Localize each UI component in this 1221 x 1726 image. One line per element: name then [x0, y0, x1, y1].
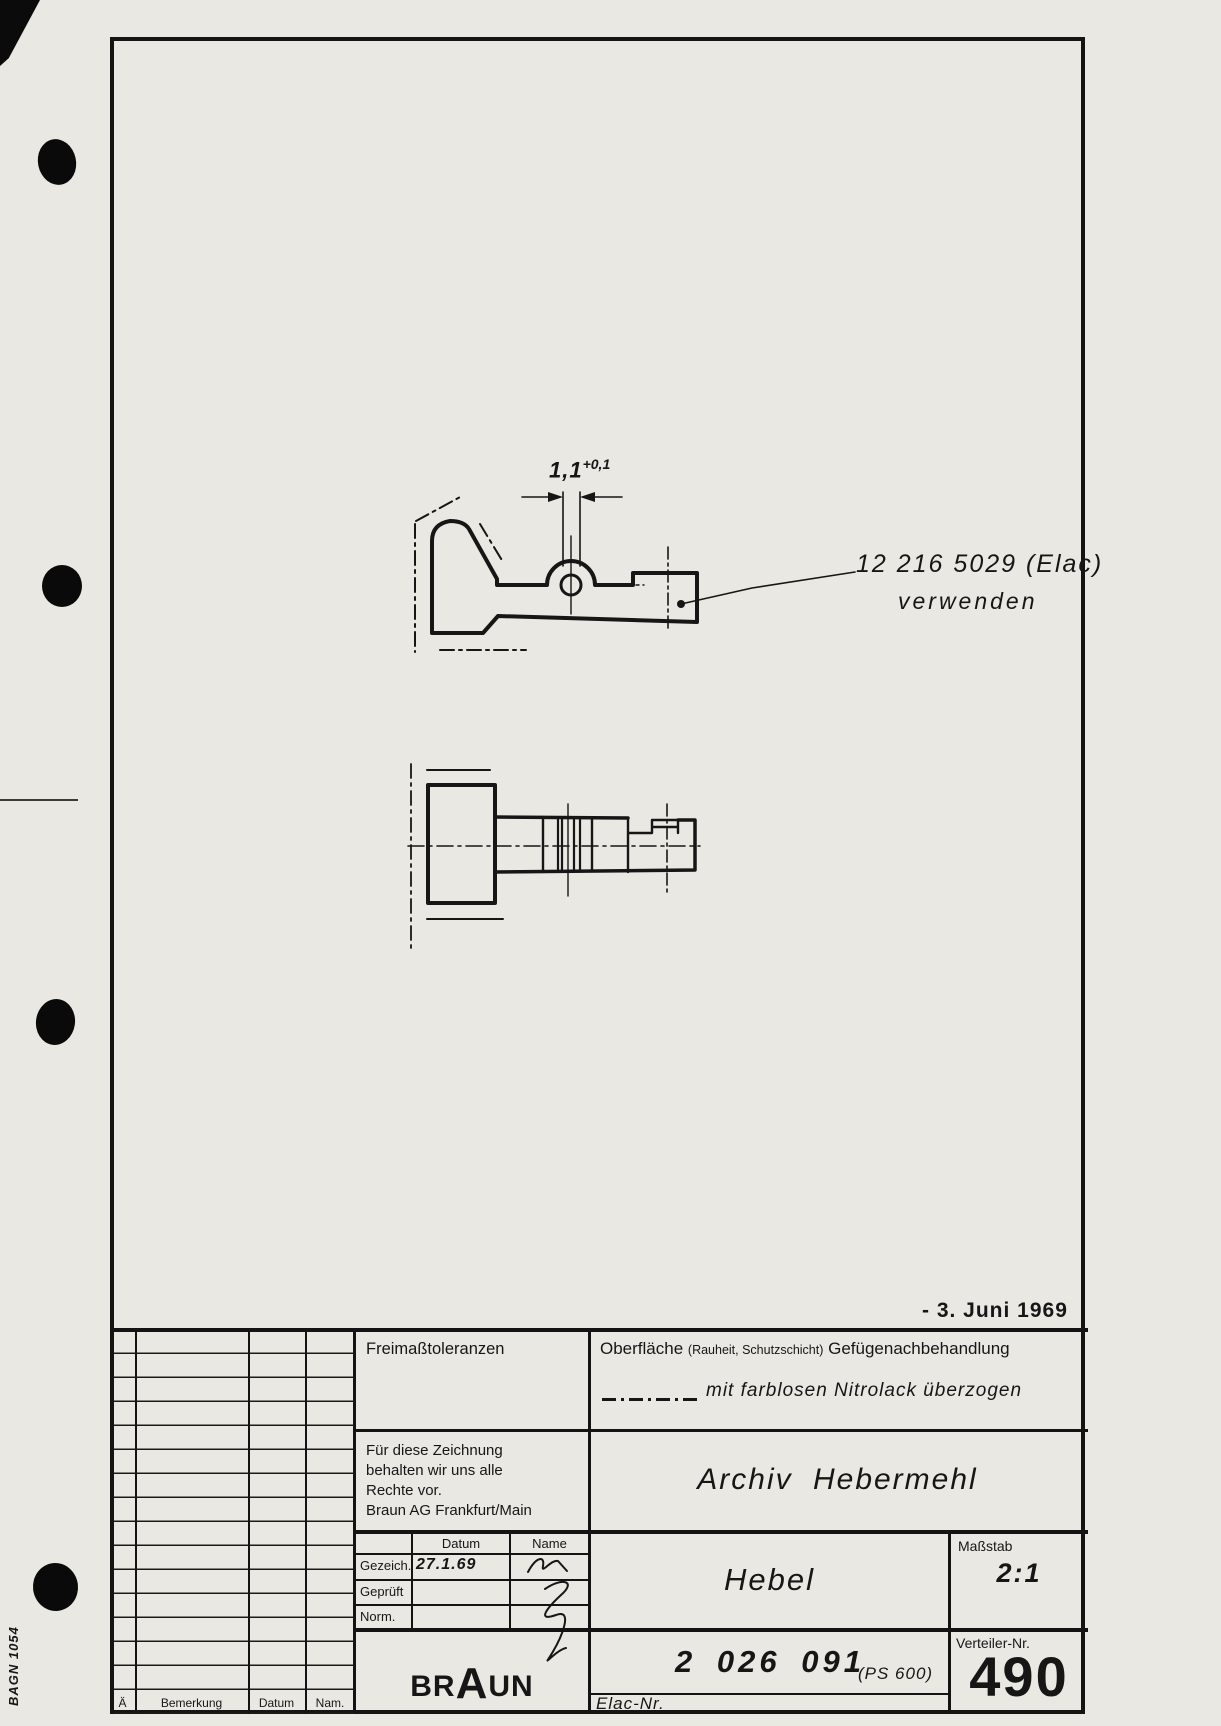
brand-logo: BR A UN — [355, 1630, 589, 1714]
rights-note-line: Rechte vor. — [366, 1481, 532, 1501]
scale-value: 2:1 — [950, 1558, 1088, 1589]
dimension-tolerance: +0,1 — [583, 456, 611, 472]
surface-label: Oberfläche — [600, 1339, 683, 1358]
surface-label-paren: (Rauheit, Schutzschicht) — [688, 1343, 823, 1357]
dim-arrow-right — [580, 492, 595, 502]
part-name: Hebel — [590, 1532, 949, 1628]
reference-ticks — [427, 770, 503, 919]
revision-v3 — [305, 1330, 307, 1714]
brand-part-a: A — [456, 1667, 489, 1700]
rights-note-line: Für diese Zeichnung — [366, 1441, 532, 1461]
revision-col-remark: Bemerkung — [135, 1696, 248, 1710]
approval-row-norm: Norm. — [360, 1609, 395, 1624]
revision-col-name: Nam. — [305, 1696, 355, 1710]
brand-part: UN — [488, 1674, 533, 1700]
dimension-label: 1,1+0,1 — [549, 456, 610, 483]
leader-dot — [677, 600, 685, 608]
leader-note-line2: verwenden — [898, 588, 1038, 615]
rights-note-line: behalten wir uns alle — [366, 1461, 532, 1481]
approval-row-gezeichnet: Gezeich. — [360, 1558, 411, 1573]
archive-name: Archiv Hebermehl — [590, 1430, 1085, 1530]
rights-note: Für diese Zeichnung behalten wir uns all… — [366, 1441, 532, 1521]
leader-line — [681, 572, 855, 604]
paddle-side-view — [428, 785, 495, 903]
freimass-label: Freimaßtoleranzen — [366, 1340, 504, 1359]
approval-row-geprueft: Geprüft — [360, 1584, 403, 1599]
surface-header: Oberfläche (Rauheit, Schutzschicht) Gefü… — [600, 1339, 1010, 1359]
approval-name-header: Name — [510, 1536, 589, 1551]
dim-arrow-left — [548, 492, 563, 502]
shaft-side-view-outline — [495, 817, 695, 872]
brand-part: BR — [410, 1674, 455, 1700]
elac-label: Elac-Nr. — [596, 1694, 665, 1714]
scanned-drawing-sheet: BAGN 1054 — [0, 0, 1221, 1726]
revision-col-a: Ä — [110, 1696, 135, 1710]
signature-gezeichnet — [528, 1559, 567, 1572]
approval-h3 — [355, 1604, 589, 1606]
drawing-number: 2 026 091 — [590, 1630, 950, 1694]
surface-label2: Gefügenachbehandlung — [828, 1339, 1010, 1358]
surface-value: mit farblosen Nitrolack überzogen — [706, 1380, 1022, 1402]
drawing-number-suffix: (PS 600) — [858, 1664, 933, 1684]
slot-lines — [558, 819, 580, 871]
approval-datum-header: Datum — [412, 1536, 510, 1551]
revision-v2 — [248, 1330, 250, 1714]
gezeichnet-date: 27.1.69 — [416, 1556, 476, 1574]
revision-v1 — [135, 1330, 137, 1714]
rights-note-line: Braun AG Frankfurt/Main — [366, 1501, 532, 1521]
approval-h2 — [355, 1579, 589, 1581]
date-stamp: - 3. Juni 1969 — [922, 1299, 1068, 1323]
scale-label: Maßstab — [958, 1538, 1012, 1554]
approval-h1 — [355, 1553, 589, 1555]
leader-note: 12 216 5029 (Elac) — [856, 550, 1103, 579]
dimension-value: 1,1 — [549, 457, 583, 482]
shaft-step-detail — [628, 818, 678, 872]
surface-dashdot-symbol — [602, 1398, 697, 1401]
revision-col-date: Datum — [248, 1696, 305, 1710]
revision-grid — [114, 1330, 354, 1714]
distributor-number: 490 — [950, 1646, 1088, 1708]
